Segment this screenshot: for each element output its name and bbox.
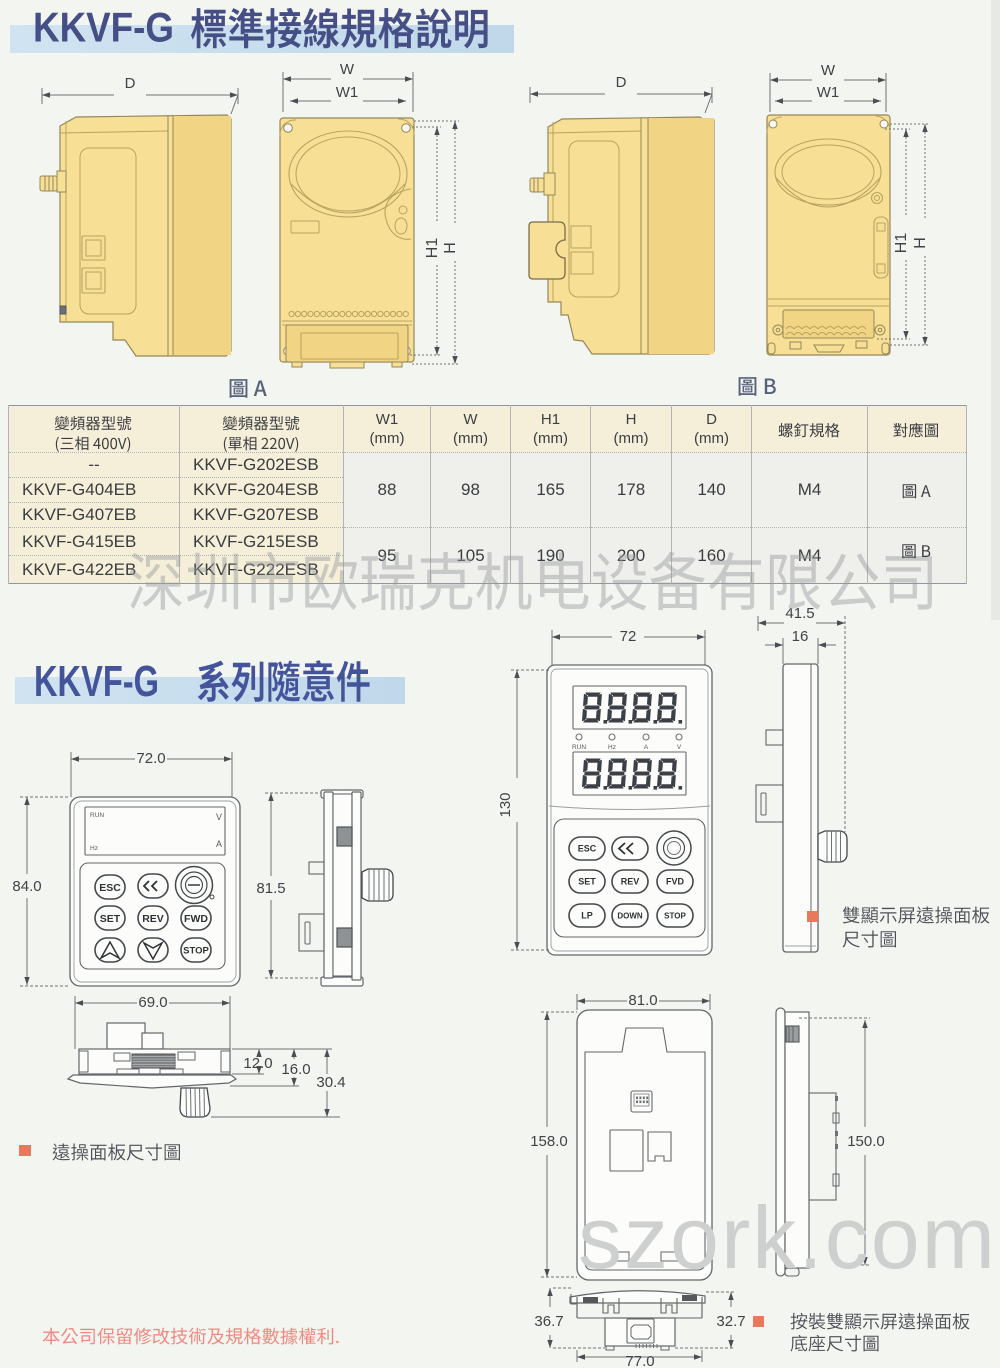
- svg-text:SET: SET: [100, 913, 121, 925]
- svg-text:RUN: RUN: [572, 744, 586, 751]
- svg-text:81.5: 81.5: [256, 880, 285, 897]
- svg-text:84.0: 84.0: [12, 878, 41, 895]
- svg-text:V: V: [677, 744, 682, 751]
- svg-text:STOP: STOP: [664, 911, 686, 920]
- svg-text:H: H: [912, 237, 929, 249]
- svg-text:STOP: STOP: [183, 945, 209, 956]
- svg-text:130: 130: [497, 792, 514, 817]
- svg-text:ESC: ESC: [99, 882, 121, 894]
- svg-text:FWD: FWD: [184, 913, 208, 925]
- svg-text:W1: W1: [336, 84, 359, 101]
- svg-text:A: A: [216, 839, 222, 849]
- svg-text:36.7: 36.7: [534, 1313, 563, 1330]
- svg-text:12.0: 12.0: [243, 1055, 272, 1072]
- svg-text:77.0: 77.0: [625, 1353, 654, 1368]
- svg-text:72: 72: [620, 628, 637, 645]
- svg-text:H1: H1: [893, 233, 910, 254]
- svg-text:A: A: [644, 744, 649, 751]
- svg-text:Hz: Hz: [90, 845, 98, 852]
- svg-text:ESC: ESC: [578, 844, 597, 854]
- svg-text:KKVF-G: KKVF-G: [33, 4, 174, 51]
- svg-text:16.0: 16.0: [281, 1061, 310, 1078]
- svg-text:81.0: 81.0: [628, 992, 657, 1009]
- svg-text:V: V: [216, 812, 222, 822]
- svg-text:30.4: 30.4: [316, 1074, 345, 1091]
- svg-text:H: H: [442, 242, 459, 254]
- svg-text:LP: LP: [581, 911, 593, 921]
- svg-text:158.0: 158.0: [530, 1133, 568, 1150]
- svg-text:69.0: 69.0: [138, 994, 167, 1011]
- svg-text:W: W: [340, 61, 355, 78]
- svg-text:W1: W1: [817, 84, 840, 101]
- svg-text:D: D: [616, 74, 627, 91]
- svg-text:REV: REV: [142, 913, 164, 925]
- svg-text:16: 16: [792, 628, 809, 645]
- svg-text:W: W: [821, 62, 836, 79]
- svg-text:32.7: 32.7: [716, 1313, 745, 1330]
- svg-text:D: D: [125, 75, 136, 92]
- svg-text:H1: H1: [424, 238, 441, 259]
- svg-text:RUN: RUN: [90, 812, 104, 819]
- svg-text:72.0: 72.0: [136, 750, 165, 767]
- svg-text:150.0: 150.0: [847, 1133, 885, 1150]
- svg-text:szork.com: szork.com: [578, 1188, 997, 1287]
- svg-text:Hz: Hz: [608, 744, 616, 751]
- svg-text:FVD: FVD: [666, 877, 685, 887]
- svg-text:SET: SET: [578, 877, 596, 887]
- svg-text:REV: REV: [621, 877, 640, 887]
- svg-text:KKVF-G: KKVF-G: [34, 657, 159, 706]
- svg-text:DOWN: DOWN: [617, 911, 643, 920]
